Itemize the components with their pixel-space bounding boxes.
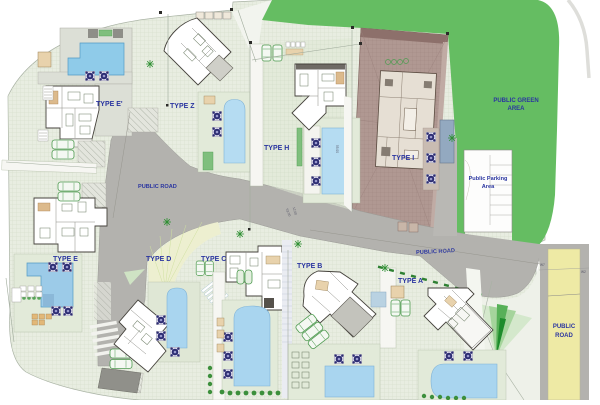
svg-text:W2: W2	[581, 270, 586, 274]
svg-text:PUBLIC GREEN: PUBLIC GREEN	[493, 98, 538, 104]
svg-text:TYPE I: TYPE I	[392, 155, 414, 162]
svg-text:Public Parking: Public Parking	[469, 176, 508, 182]
svg-text:Area: Area	[482, 184, 495, 190]
svg-text:TYPE H: TYPE H	[264, 145, 289, 152]
svg-text:TYPE E: TYPE E	[53, 256, 78, 263]
svg-text:PUBLIC: PUBLIC	[553, 324, 576, 330]
svg-text:TYPE C: TYPE C	[201, 256, 226, 263]
svg-text:TYPE Z: TYPE Z	[170, 103, 195, 110]
svg-text:AREA: AREA	[507, 106, 525, 112]
svg-text:TYPE E': TYPE E'	[96, 101, 123, 108]
svg-text:TYPE A: TYPE A	[398, 278, 423, 285]
svg-text:ROAD: ROAD	[555, 333, 573, 339]
svg-text:PUBLIC ROAD: PUBLIC ROAD	[138, 184, 177, 190]
svg-text:55.00: 55.00	[335, 145, 339, 153]
svg-text:TYPE B: TYPE B	[297, 263, 322, 270]
svg-text:TYPE D: TYPE D	[146, 256, 171, 263]
svg-text:W7: W7	[540, 263, 545, 267]
